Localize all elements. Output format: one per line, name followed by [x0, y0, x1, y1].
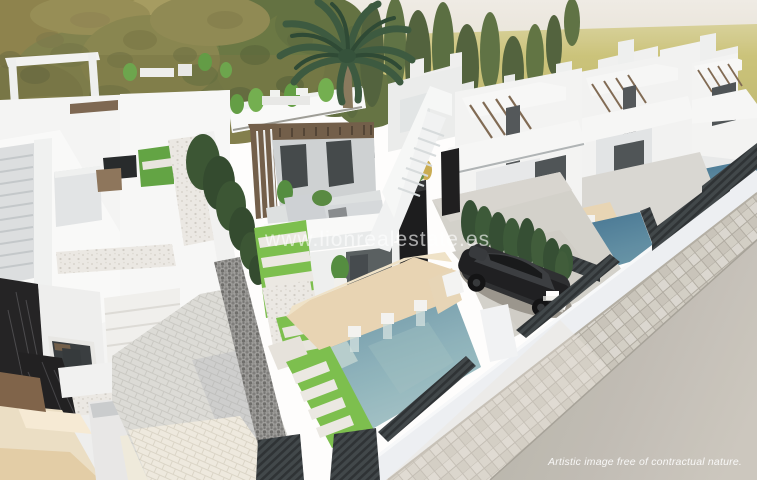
svg-text:www.lionrealestate.es: www.lionrealestate.es [264, 228, 490, 251]
svg-text:Artistic image free of contrac: Artistic image free of contractual natur… [547, 456, 742, 468]
